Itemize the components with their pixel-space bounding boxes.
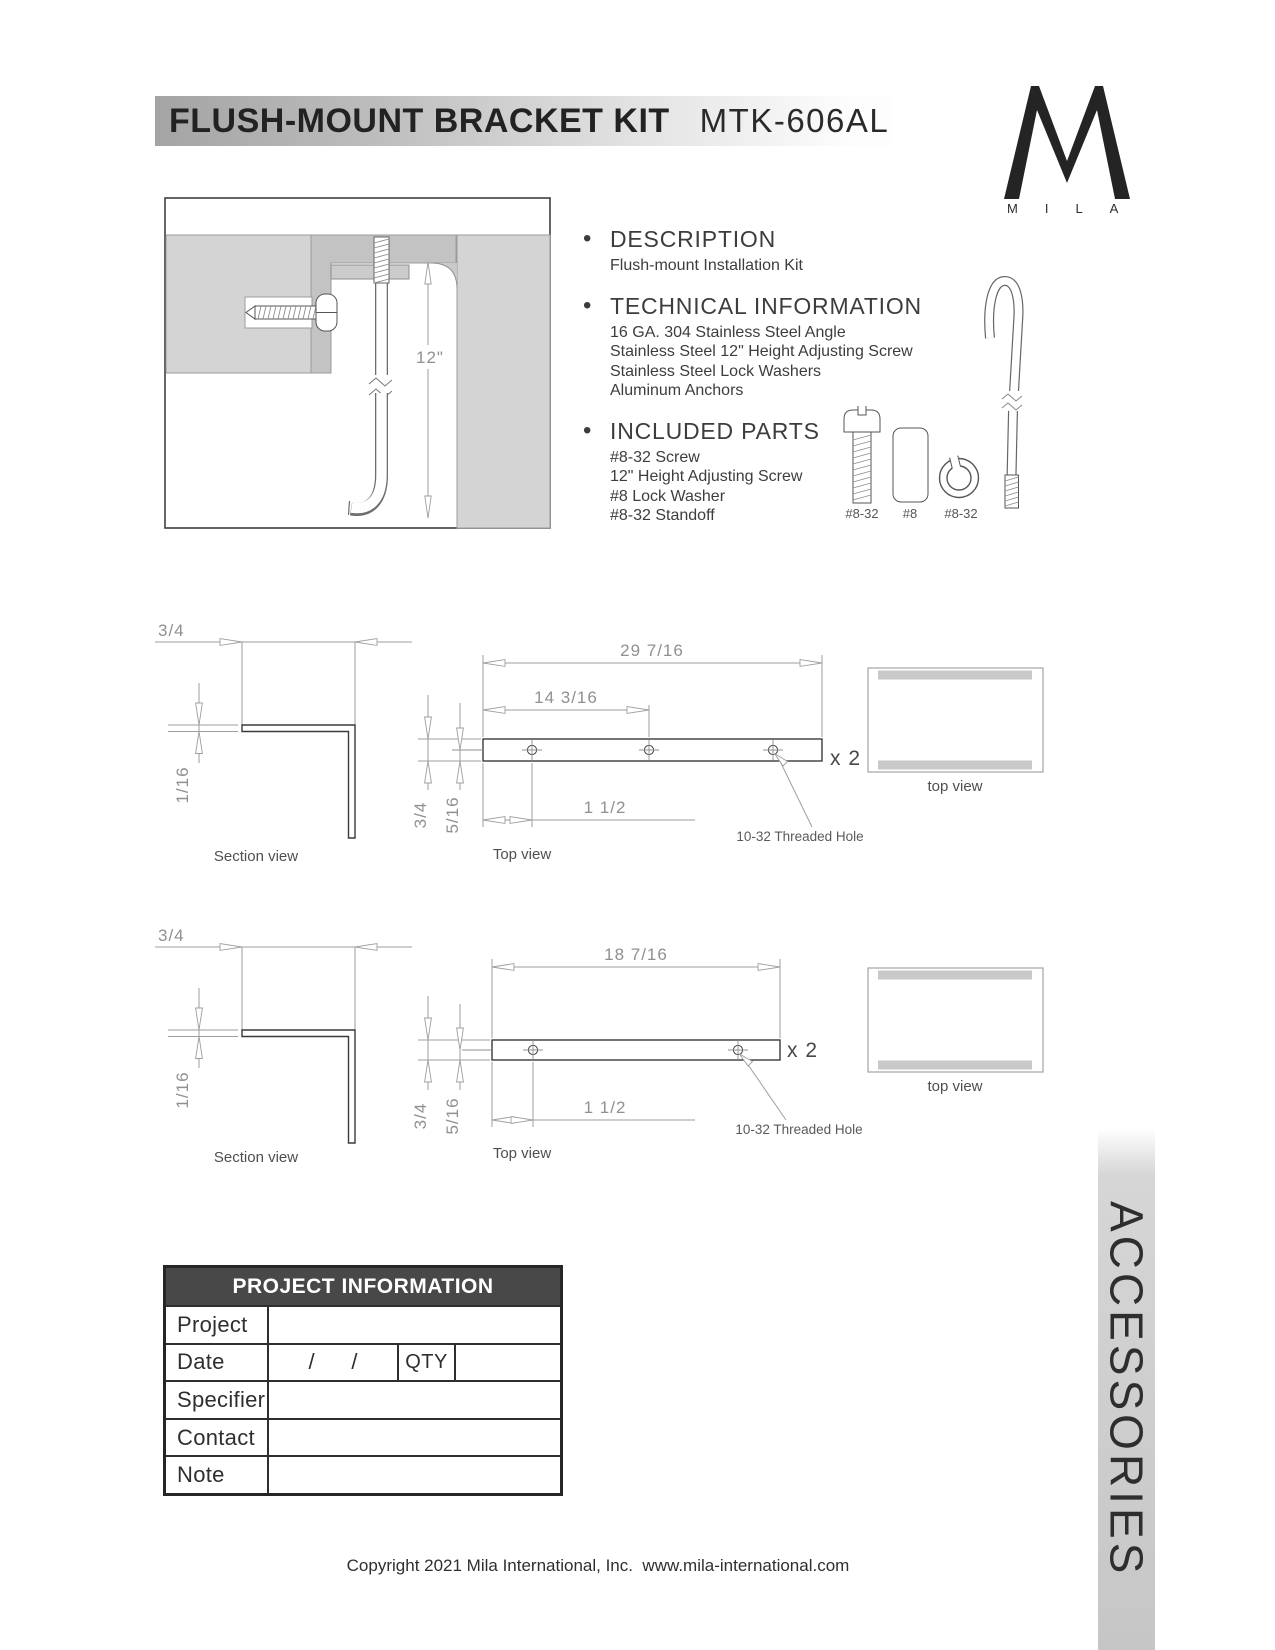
lock-washer-part xyxy=(940,455,979,497)
threaded-hole-note: 10-32 Threaded Hole xyxy=(736,829,863,844)
qty-value-cell xyxy=(456,1345,560,1381)
dim-hole-offset: 5/16 xyxy=(443,1097,462,1134)
included-heading: INCLUDED PARTS xyxy=(610,416,820,446)
logo-m-glyph xyxy=(1004,86,1130,199)
end-view-2: top view xyxy=(868,968,1043,1095)
bullet-icon: • xyxy=(583,291,610,321)
row-label-project: Project xyxy=(166,1307,269,1343)
date-value-cell: / / xyxy=(269,1345,399,1381)
specifier-value-cell xyxy=(269,1382,560,1418)
installation-diagram: 12" xyxy=(155,185,555,530)
dim-end-hole: 1 1/2 xyxy=(584,1098,627,1117)
dim-mid-hole: 14 3/16 xyxy=(534,688,598,707)
project-info-table: PROJECT INFORMATION Project Date / / QTY… xyxy=(163,1265,563,1496)
dim-hole-offset: 5/16 xyxy=(443,796,462,833)
section-view-label: Section view xyxy=(214,848,298,865)
footer-copyright: Copyright 2021 Mila International, Inc. … xyxy=(0,1556,1196,1576)
drawing-long-bracket: 3/4 1/16 Section view xyxy=(150,575,1060,880)
page-title: FLUSH-MOUNT BRACKET KIT xyxy=(169,102,670,141)
quantity-label: x 2 xyxy=(830,747,861,770)
dim-overall-length: 18 7/16 xyxy=(604,945,668,964)
table-row-specifier: Specifier xyxy=(166,1380,560,1418)
dim-thickness: 1/16 xyxy=(173,766,192,803)
dim-depth: 3/4 xyxy=(411,802,430,829)
project-value-cell xyxy=(269,1307,560,1343)
dim-12in: 12" xyxy=(416,348,444,367)
part-label-washer: #8-32 xyxy=(944,506,977,521)
quantity-label: x 2 xyxy=(787,1039,818,1062)
row-label-date: Date xyxy=(166,1345,269,1381)
table-row-date: Date / / QTY xyxy=(166,1343,560,1381)
table-row-note: Note xyxy=(166,1455,560,1493)
side-tab-label: ACCESSORIES xyxy=(1100,1201,1154,1577)
drawing-short-bracket: 3/4 1/16 Section view 18 7/16 xyxy=(150,880,1060,1180)
dim-angle-width: 3/4 xyxy=(158,621,185,640)
part-label-screw: #8-32 xyxy=(845,506,878,521)
brand-wordmark: MILA xyxy=(1001,201,1167,216)
note-value-cell xyxy=(269,1457,560,1493)
bullet-icon: • xyxy=(583,416,610,446)
dim-angle-width: 3/4 xyxy=(158,926,185,945)
title-bar: FLUSH-MOUNT BRACKET KIT MTK-606AL xyxy=(155,96,891,146)
dim-thickness: 1/16 xyxy=(173,1071,192,1108)
top-view-2: 18 7/16 1 1/2 3/4 5/16 x 2 10-32 Threade… xyxy=(411,945,863,1162)
threaded-hole-note: 10-32 Threaded Hole xyxy=(735,1122,862,1137)
screw-part xyxy=(844,406,880,503)
row-label-contact: Contact xyxy=(166,1420,269,1456)
section-view-1: 3/4 1/16 Section view xyxy=(155,621,412,865)
bullet-icon: • xyxy=(583,224,610,254)
part-label-standoff: #8 xyxy=(903,506,917,521)
adjusting-screw-part xyxy=(989,281,1023,508)
standoff-part xyxy=(893,428,928,502)
parts-illustrations: #8-32 #8 #8-32 xyxy=(830,265,1030,525)
spec-sheet-page: FLUSH-MOUNT BRACKET KIT MTK-606AL MILA xyxy=(0,0,1275,1650)
dim-depth: 3/4 xyxy=(411,1103,430,1130)
project-info-header: PROJECT INFORMATION xyxy=(166,1268,560,1305)
mount-screw xyxy=(245,294,337,331)
description-heading: DESCRIPTION xyxy=(610,224,776,254)
model-number: MTK-606AL xyxy=(700,102,890,140)
top-view-label: Top view xyxy=(493,846,552,863)
section-view-label: Section view xyxy=(214,1149,298,1166)
table-row-project: Project xyxy=(166,1305,560,1343)
row-label-specifier: Specifier xyxy=(166,1382,269,1418)
section-view-2: 3/4 1/16 Section view xyxy=(155,926,412,1166)
end-view-label: top view xyxy=(927,778,982,795)
top-view-1: 29 7/16 14 3/16 1 1/2 3/4 5/16 x 2 xyxy=(411,641,864,863)
top-view-label: Top view xyxy=(493,1145,552,1162)
dim-end-hole: 1 1/2 xyxy=(584,798,627,817)
table-row-contact: Contact xyxy=(166,1418,560,1456)
end-view-label: top view xyxy=(927,1078,982,1095)
row-label-note: Note xyxy=(166,1457,269,1493)
mila-logo-icon xyxy=(1002,84,1132,199)
dim-overall-length: 29 7/16 xyxy=(620,641,684,660)
qty-label-cell: QTY xyxy=(399,1345,456,1381)
end-view-1: top view xyxy=(868,668,1043,795)
contact-value-cell xyxy=(269,1420,560,1456)
